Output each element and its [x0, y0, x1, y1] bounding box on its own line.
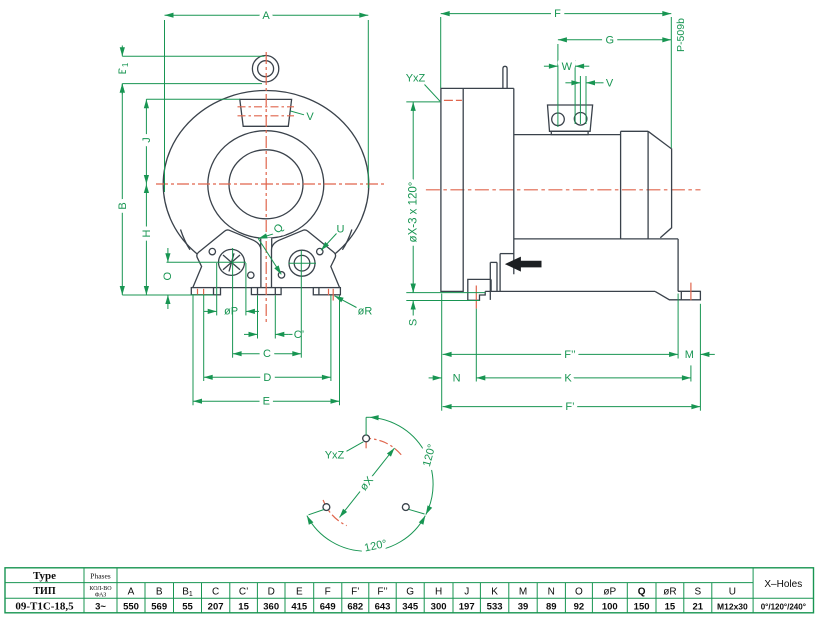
svg-text:U: U [729, 586, 736, 597]
svg-text:150: 150 [634, 601, 650, 612]
svg-text:X–Holes: X–Holes [764, 579, 802, 590]
svg-text:Phases: Phases [90, 571, 110, 580]
svg-text:ФАЗ: ФАЗ [95, 593, 107, 599]
svg-text:O: O [575, 586, 583, 597]
svg-text:569: 569 [151, 601, 167, 612]
svg-text:YxZ: YxZ [325, 450, 345, 462]
svg-text:197: 197 [459, 601, 475, 612]
svg-text:N: N [453, 372, 461, 384]
svg-text:15: 15 [665, 601, 676, 612]
svg-text:Type: Type [33, 570, 56, 582]
svg-text:F: F [325, 586, 331, 597]
svg-text:415: 415 [291, 601, 308, 612]
svg-text:533: 533 [487, 601, 503, 612]
svg-text:550: 550 [123, 601, 139, 612]
svg-text:O: O [162, 271, 174, 280]
svg-text:øX-3 x 120°: øX-3 x 120° [407, 182, 419, 243]
svg-text:15: 15 [238, 601, 249, 612]
svg-text:V: V [606, 78, 614, 90]
svg-text:A: A [128, 586, 135, 597]
svg-text:C: C [212, 586, 219, 597]
svg-text:B: B [156, 586, 163, 597]
svg-text:A: A [262, 10, 270, 22]
svg-text:D: D [263, 372, 271, 384]
svg-text:øP: øP [224, 306, 238, 318]
svg-text:G: G [606, 34, 615, 46]
svg-text:39: 39 [518, 601, 529, 612]
svg-text:Q: Q [638, 586, 646, 597]
svg-text:K: K [491, 586, 498, 597]
svg-text:H: H [141, 229, 153, 237]
svg-text:21: 21 [693, 601, 704, 612]
svg-text:S: S [694, 586, 701, 597]
svg-text:F’’: F’’ [564, 349, 575, 361]
svg-text:КОЛ-ВО: КОЛ-ВО [89, 586, 112, 592]
svg-text:207: 207 [208, 601, 224, 612]
svg-text:360: 360 [263, 601, 279, 612]
svg-text:92: 92 [574, 601, 585, 612]
svg-text:M: M [685, 349, 694, 361]
svg-text:W: W [562, 61, 573, 73]
svg-text:682: 682 [347, 601, 363, 612]
svg-text:J: J [464, 586, 469, 597]
svg-text:643: 643 [375, 601, 391, 612]
svg-text:89: 89 [546, 601, 557, 612]
svg-text:F: F [554, 8, 561, 20]
svg-text:100: 100 [602, 601, 618, 612]
svg-text:øP: øP [603, 586, 616, 597]
svg-text:C’: C’ [239, 586, 248, 597]
svg-text:S: S [408, 319, 420, 326]
svg-text:øR: øR [663, 586, 676, 597]
svg-text:F’: F’ [565, 401, 574, 413]
svg-text:E: E [296, 586, 303, 597]
svg-text:B: B [117, 202, 129, 209]
svg-text:H: H [435, 586, 442, 597]
svg-text:D: D [268, 586, 275, 597]
svg-text:K: K [564, 372, 572, 384]
svg-text:G: G [406, 586, 414, 597]
svg-text:E: E [263, 396, 270, 408]
svg-text:C’: C’ [294, 329, 304, 341]
svg-text:J: J [141, 137, 153, 143]
svg-text:649: 649 [320, 601, 336, 612]
svg-text:YxZ: YxZ [406, 73, 426, 85]
svg-text:M: M [519, 586, 527, 597]
svg-text:3~: 3~ [95, 601, 106, 612]
svg-text:M12x30: M12x30 [717, 601, 748, 611]
svg-text:N: N [548, 586, 555, 597]
svg-text:F’: F’ [351, 586, 359, 597]
svg-text:09-T1C-18,5: 09-T1C-18,5 [15, 601, 74, 613]
svg-text:U: U [337, 224, 345, 236]
svg-text:C: C [263, 348, 271, 360]
svg-text:300: 300 [431, 601, 447, 612]
svg-text:0°/120°/240°: 0°/120°/240° [761, 602, 806, 611]
svg-text:V: V [306, 111, 314, 123]
svg-text:ТИП: ТИП [33, 586, 55, 597]
svg-text:øR: øR [358, 305, 373, 317]
svg-text:345: 345 [402, 601, 419, 612]
svg-text:F’’: F’’ [377, 586, 387, 597]
svg-text:P-509b: P-509b [675, 18, 687, 52]
svg-text:55: 55 [182, 601, 193, 612]
